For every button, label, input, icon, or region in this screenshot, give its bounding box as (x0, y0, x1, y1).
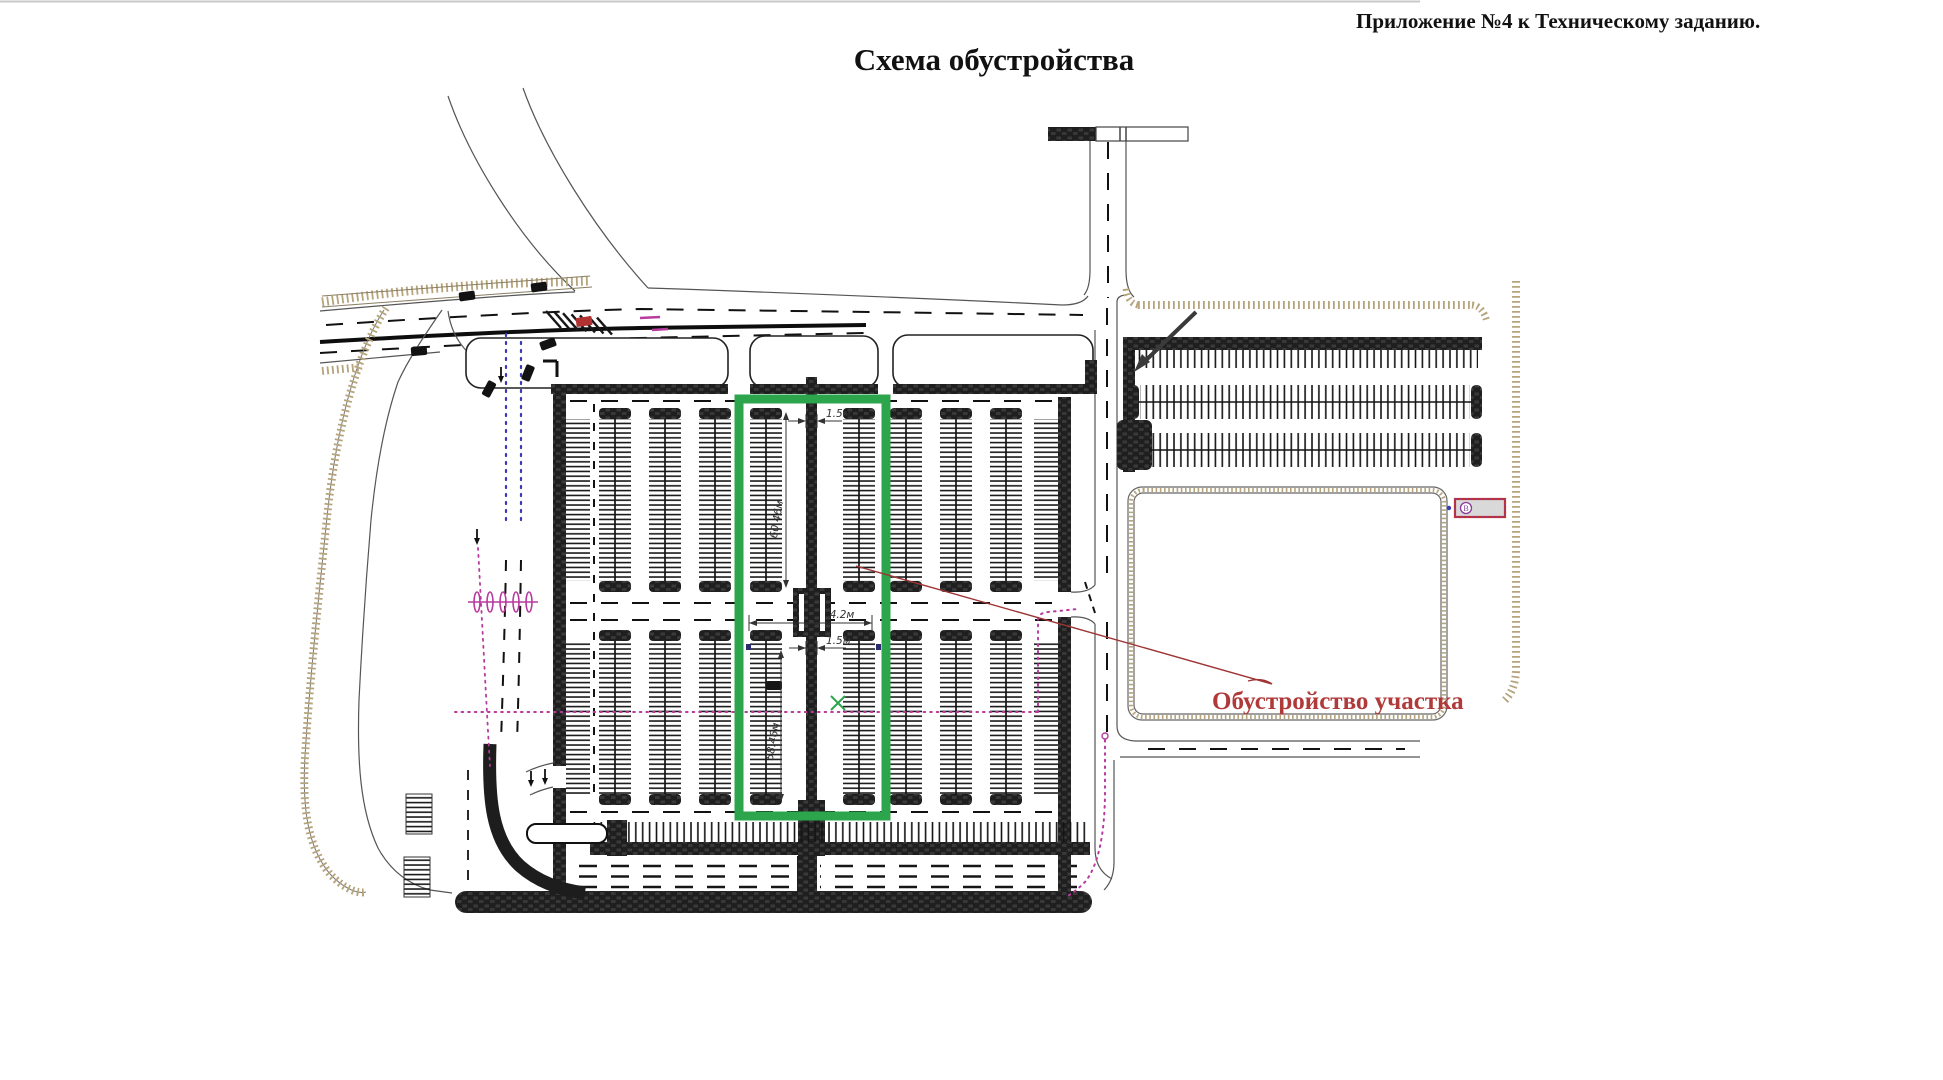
crossing-stripe (597, 318, 612, 335)
main-parking-lot (404, 335, 1097, 913)
bay-cap (890, 794, 922, 805)
bay-cap (649, 408, 681, 419)
arrow-head (528, 780, 534, 787)
crossing-stripe (555, 312, 570, 329)
bay-cap (843, 794, 875, 805)
page-title: Схема обустройства (816, 42, 1172, 78)
bay-cap (940, 581, 972, 592)
edge-stall-row (1034, 419, 1058, 581)
stall-comb-row (1130, 350, 1478, 368)
car-marker (766, 681, 782, 690)
arrow-head (542, 778, 548, 785)
corner-pin (746, 644, 751, 650)
car-marker (458, 290, 475, 301)
bay-cap (750, 581, 782, 592)
dim-label: 1.5м (826, 635, 851, 647)
bay-cap (940, 630, 972, 641)
bay-cap (599, 794, 631, 805)
dim-1-5-bottom: 1.5м (789, 635, 851, 655)
edge-stall-row (566, 419, 590, 581)
lot-left-strip (553, 384, 566, 766)
car-marker (411, 346, 428, 356)
bay-cap (990, 408, 1022, 419)
parcel-boundary (1128, 487, 1447, 720)
lot-right-strip (1058, 397, 1071, 592)
arrow-head (474, 538, 480, 545)
lot-top-band (551, 384, 1097, 394)
bay-cap (599, 581, 631, 592)
bay-cap (750, 630, 782, 641)
row-cap (1138, 433, 1149, 467)
crossing-stripe (546, 311, 561, 328)
bus-stop-letter: В (1463, 504, 1468, 513)
row-cap (1471, 433, 1482, 467)
site-plan-drawing: В 60.46м (0, 0, 1943, 1080)
bay-cap (649, 581, 681, 592)
bay-cap (699, 581, 731, 592)
site-plan-page: В 60.46м (0, 0, 1943, 1080)
dim-label: 1.5м (826, 408, 851, 420)
bay-cap (699, 408, 731, 419)
bay-cap (699, 630, 731, 641)
bay-cap (890, 630, 922, 641)
bay-cap (649, 630, 681, 641)
bay-cap (890, 408, 922, 419)
appendix-note: Приложение №4 к Техническому заданию. (1356, 9, 1760, 34)
dim-1-5-top: 1.5м (788, 408, 851, 428)
lot-bottom-band (455, 891, 1092, 913)
row-cap (1471, 385, 1482, 419)
bay-cap (649, 794, 681, 805)
utility-lines (455, 317, 1108, 897)
bay-cap (599, 630, 631, 641)
green-x-mark (831, 696, 845, 710)
magenta-utility-lines (455, 317, 1108, 897)
corner-pin (876, 644, 881, 650)
bay-cap (699, 794, 731, 805)
lot-bottom-sections (404, 744, 1092, 913)
crossing-stripe (563, 313, 578, 330)
north-parking-block (1117, 312, 1482, 472)
bay-cap (599, 408, 631, 419)
bay-cap (940, 794, 972, 805)
bay-cap (990, 794, 1022, 805)
bay-cap (750, 794, 782, 805)
dim-label: 4.2м (830, 609, 855, 621)
direction-arrows (474, 367, 548, 787)
bay-cap (843, 581, 875, 592)
bus-stop-symbol: В (1447, 499, 1505, 517)
bay-cap (990, 581, 1022, 592)
callout-label: Обустройство участка (1212, 688, 1464, 716)
edge-stall-row (566, 641, 590, 794)
row-cap (1128, 385, 1139, 419)
bay-cap (940, 408, 972, 419)
bay-cap (750, 408, 782, 419)
entrance-islands (466, 335, 1093, 388)
bay-cap (990, 630, 1022, 641)
